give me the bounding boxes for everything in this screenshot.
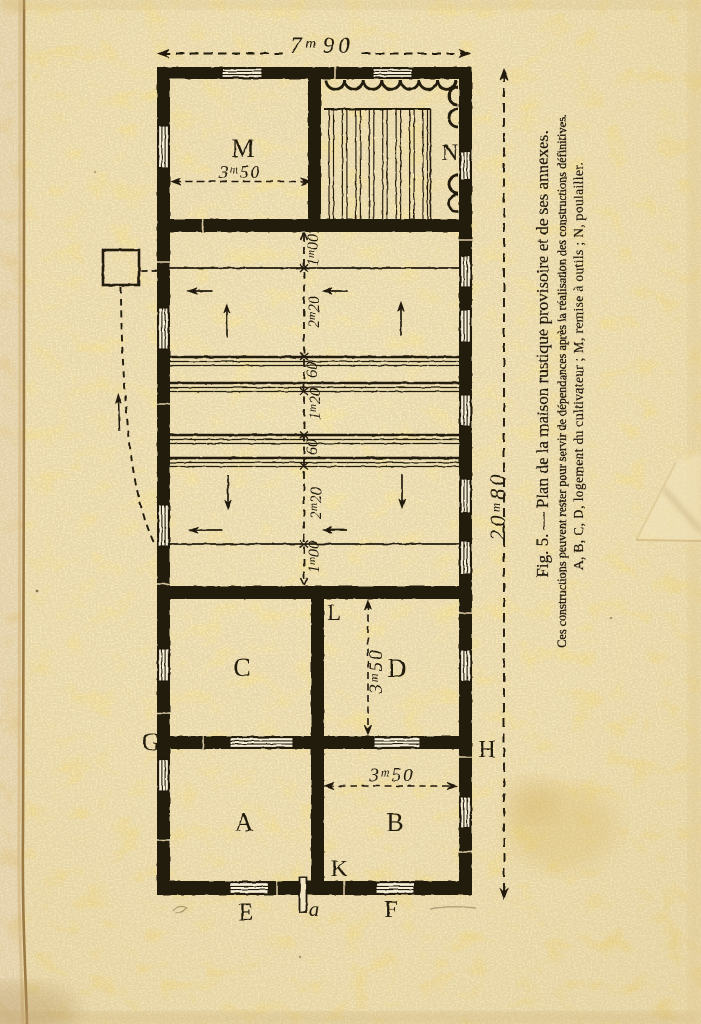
svg-text:Fig. 5. — Plan de la maison ru: Fig. 5. — Plan de la maison rustique pro… <box>533 130 552 577</box>
svg-text:60: 60 <box>304 439 321 455</box>
svg-text:A, B, C, D, logement du cultiv: A, B, C, D, logement du cultivateur ; M,… <box>571 162 586 570</box>
svg-text:M: M <box>231 134 254 163</box>
svg-text:H: H <box>478 737 495 763</box>
svg-text:E: E <box>239 900 254 926</box>
svg-text:C: C <box>233 653 250 682</box>
svg-text:1m20: 1m20 <box>307 388 324 420</box>
svg-text:3m50: 3m50 <box>366 648 387 694</box>
svg-text:1m00: 1m00 <box>306 541 323 573</box>
svg-text:3m50: 3m50 <box>368 765 414 786</box>
svg-text:3m50: 3m50 <box>218 162 261 182</box>
svg-text:B: B <box>386 808 403 837</box>
svg-text:L: L <box>327 600 341 625</box>
svg-text:a: a <box>309 897 320 921</box>
svg-text:F: F <box>384 897 397 923</box>
svg-text:Ces constructions peuvent rest: Ces constructions peuvent rester pour se… <box>555 114 569 647</box>
svg-text:7m90: 7m90 <box>290 33 354 58</box>
svg-text:2m20: 2m20 <box>306 296 323 328</box>
svg-text:D: D <box>388 654 407 683</box>
svg-text:K: K <box>331 856 348 881</box>
svg-text:2m20: 2m20 <box>308 487 325 519</box>
svg-text:1m00: 1m00 <box>305 234 322 266</box>
svg-text:N: N <box>442 140 459 165</box>
svg-text:60: 60 <box>304 362 321 378</box>
svg-text:G: G <box>142 729 160 756</box>
svg-text:A: A <box>235 808 254 837</box>
